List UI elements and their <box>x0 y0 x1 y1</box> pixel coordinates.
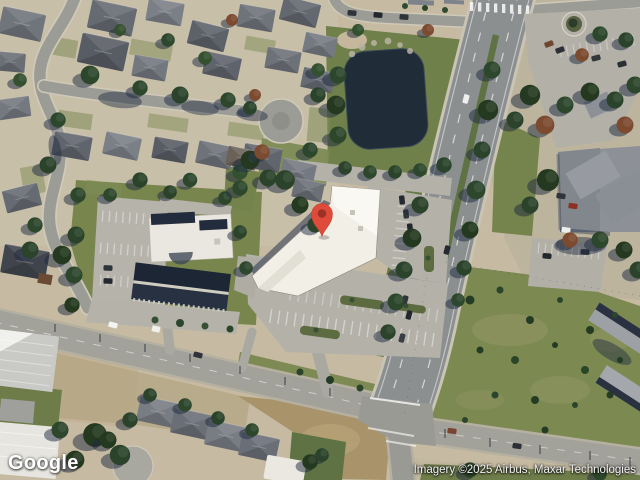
map-canvas[interactable]: Google Imagery ©2025 Airbus, Maxar Techn… <box>0 0 640 480</box>
attribution-text: Imagery ©2025 Airbus, Maxar Technologies <box>414 464 636 476</box>
google-logo[interactable]: Google <box>8 452 79 475</box>
satellite-imagery <box>0 0 640 480</box>
map-pin-dot <box>318 209 327 218</box>
